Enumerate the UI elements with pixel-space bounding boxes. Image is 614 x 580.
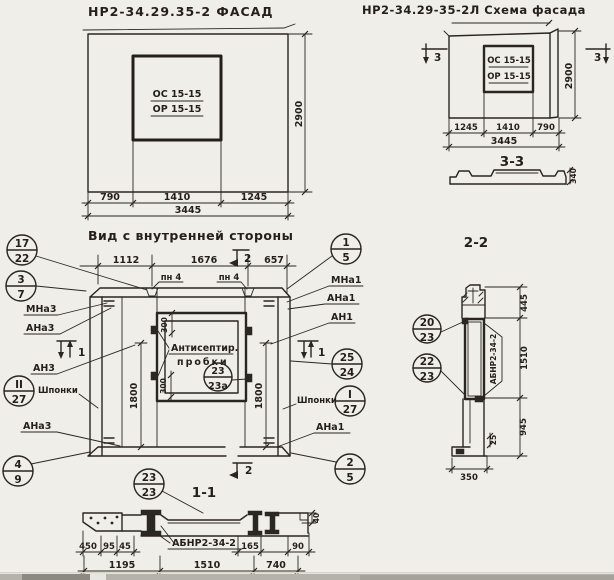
antiseptic-note-line1: Антисептир. — [171, 343, 238, 354]
dim-label: 3445 — [175, 205, 201, 216]
dim-label: 165 — [241, 542, 259, 552]
svg-text:23: 23 — [142, 472, 157, 484]
section-1-1-drawing: АБНР2-34-2 450 95 45 165 90 1195 1510 74… — [76, 510, 321, 575]
callout-2-5: 2 5 — [291, 453, 365, 484]
dim-label: 1245 — [241, 192, 267, 203]
scan-edge-band — [0, 572, 614, 580]
mark-label-an1: АН1 — [331, 312, 353, 323]
ibeam-key — [141, 510, 161, 536]
svg-text:23: 23 — [420, 371, 435, 383]
mark-label-mna3: МНа3 — [26, 304, 56, 315]
slot-label: пн 4 — [219, 273, 240, 283]
dim-label: 740 — [266, 560, 286, 571]
section-label-2-2: 2-2 — [464, 235, 488, 251]
dim-label: 1245 — [454, 123, 478, 133]
ibeam-key — [248, 511, 262, 535]
svg-text:5: 5 — [342, 252, 349, 264]
dim-label: 1800 — [254, 382, 265, 409]
svg-text:23: 23 — [420, 332, 435, 344]
plug-lug — [246, 374, 252, 382]
svg-text:27: 27 — [12, 394, 27, 406]
section-mark-label: 3 — [434, 52, 441, 64]
dim-label: 340 — [569, 168, 578, 184]
section-mark-3-left: 3 — [422, 44, 447, 64]
inner-view-drawing: Вид с внутренней стороны 1112 1676 657 2… — [3, 228, 365, 513]
mark-label-ana3-low: АНа3 — [23, 421, 51, 432]
mark-label-ana1-low: АНа1 — [316, 422, 344, 433]
slot-label: пн 4 — [161, 273, 182, 283]
svg-text:4: 4 — [14, 459, 21, 471]
dim-label: 25 — [489, 435, 498, 445]
section-2-2-drawing: 2-2 АБНР2-34-2 25 445 1510 945 350 20 — [413, 235, 530, 483]
blueprint-sheet: НР2-34.29.35-2 ФАСАД ОС 15-15 ОР 15-15 7… — [0, 0, 614, 580]
dim-label: 95 — [103, 542, 115, 552]
svg-text:23: 23 — [211, 366, 224, 377]
dim-label: 1510 — [194, 560, 221, 571]
callout-I-27: I 27 — [335, 386, 365, 416]
slot-pn4-right — [242, 288, 254, 296]
svg-text:7: 7 — [17, 289, 24, 301]
dim-label: 1410 — [164, 192, 191, 203]
svg-text:2: 2 — [346, 457, 353, 469]
window-mark-or: ОР 15-15 — [487, 72, 531, 82]
dim-label: 90 — [292, 542, 304, 552]
label-shponki-right: Шпонки — [297, 396, 337, 406]
dim-label: 2900 — [294, 100, 305, 127]
section-mark-2-top: 2 — [229, 250, 251, 267]
section-mark-label: 2 — [245, 465, 252, 477]
mark-label-mna1: МНа1 — [331, 275, 361, 286]
section-mark-1-right: 1 — [298, 340, 325, 359]
callout-3-7: 3 7 — [6, 271, 86, 301]
window-mark-or: ОР 15-15 — [153, 104, 202, 115]
dim-label: 1800 — [129, 382, 140, 409]
svg-text:1: 1 — [342, 237, 349, 249]
dim-label: 350 — [460, 473, 478, 483]
plug-lug — [151, 372, 157, 380]
dim-label: 1510 — [520, 346, 530, 370]
svg-text:20: 20 — [420, 317, 435, 329]
window-opening — [484, 46, 533, 92]
dim-label: 450 — [79, 542, 97, 552]
dim-label: 1112 — [113, 255, 139, 266]
svg-text:23: 23 — [142, 487, 157, 499]
label-shponki-left: Шпонки — [38, 386, 78, 396]
dim-label: 657 — [264, 255, 284, 266]
dim-label: 790 — [100, 192, 120, 203]
drawing-title-left: НР2-34.29.35-2 ФАСАД — [88, 4, 273, 19]
dim-label: 3445 — [491, 136, 517, 147]
mark-label-ana3: АНа3 — [26, 323, 54, 334]
dim-label: 300 — [160, 317, 169, 333]
svg-text:22: 22 — [420, 356, 435, 368]
section-mark-label: 1 — [318, 347, 325, 359]
callout-20-23: 20 23 — [413, 315, 465, 344]
section-mark-3-right: 3 — [586, 44, 610, 64]
callout-4-9: 4 9 — [3, 452, 90, 486]
section-mark-label: 1 — [78, 347, 85, 359]
svg-text:5: 5 — [346, 472, 353, 484]
svg-text:25: 25 — [340, 352, 355, 364]
svg-text:24: 24 — [340, 367, 355, 379]
callout-22-23: 22 23 — [413, 354, 464, 394]
window-mark-os: ОС 15-15 — [487, 56, 531, 66]
inner-view-title: Вид с внутренней стороны — [88, 228, 293, 243]
dim-label: 945 — [519, 418, 529, 436]
facade-drawing: НР2-34.29.35-2 ФАСАД ОС 15-15 ОР 15-15 7… — [82, 4, 312, 220]
svg-text:I: I — [348, 389, 352, 401]
dim-label: 445 — [520, 294, 530, 312]
section-label-3-3: 3-3 — [500, 154, 524, 170]
dim-label: 2900 — [564, 62, 575, 89]
mark-label-ana1: АНа1 — [327, 293, 355, 304]
plug-lug — [246, 327, 252, 335]
section-mark-label: 2 — [244, 253, 251, 265]
callout-II-27: II 27 — [4, 376, 34, 406]
svg-text:3: 3 — [17, 274, 24, 286]
svg-text:II: II — [15, 379, 23, 391]
dim-label: 1676 — [191, 255, 218, 266]
svg-text:23а: 23а — [208, 381, 228, 392]
drawing-title-right: НР2-34.29-35-2Л Схема фасада — [362, 3, 586, 17]
stamp-label: АБНР2-34-2 — [172, 538, 236, 549]
dim-label: 1410 — [496, 123, 520, 133]
dim-label: 790 — [537, 123, 555, 133]
svg-text:9: 9 — [14, 474, 21, 486]
dim-label: 45 — [119, 542, 131, 552]
section-mark-1-left: 1 — [57, 340, 85, 359]
schema-drawing: НР2-34.29-35-2Л Схема фасада ОС 15-15 ОР… — [362, 3, 610, 185]
drawing-canvas: НР2-34.29.35-2 ФАСАД ОС 15-15 ОР 15-15 7… — [0, 0, 614, 580]
section-label-1-1: 1-1 — [192, 485, 216, 501]
dim-label: 40 — [312, 513, 321, 523]
svg-text:17: 17 — [15, 238, 30, 250]
dim-label: 1195 — [109, 560, 135, 571]
svg-text:27: 27 — [343, 404, 358, 416]
section-mark-2-bottom: 2 — [229, 463, 252, 479]
stamp-label: АБНР2-34-2 — [489, 334, 498, 384]
section-mark-label: 3 — [594, 52, 601, 64]
mark-label-an3: АН3 — [33, 363, 55, 374]
dim-label: 300 — [159, 378, 168, 394]
plug-lug — [151, 326, 157, 334]
svg-text:22: 22 — [15, 253, 30, 265]
anchor-marks — [104, 301, 274, 443]
ibeam-key — [265, 512, 279, 534]
window-mark-os: ОС 15-15 — [153, 89, 202, 100]
